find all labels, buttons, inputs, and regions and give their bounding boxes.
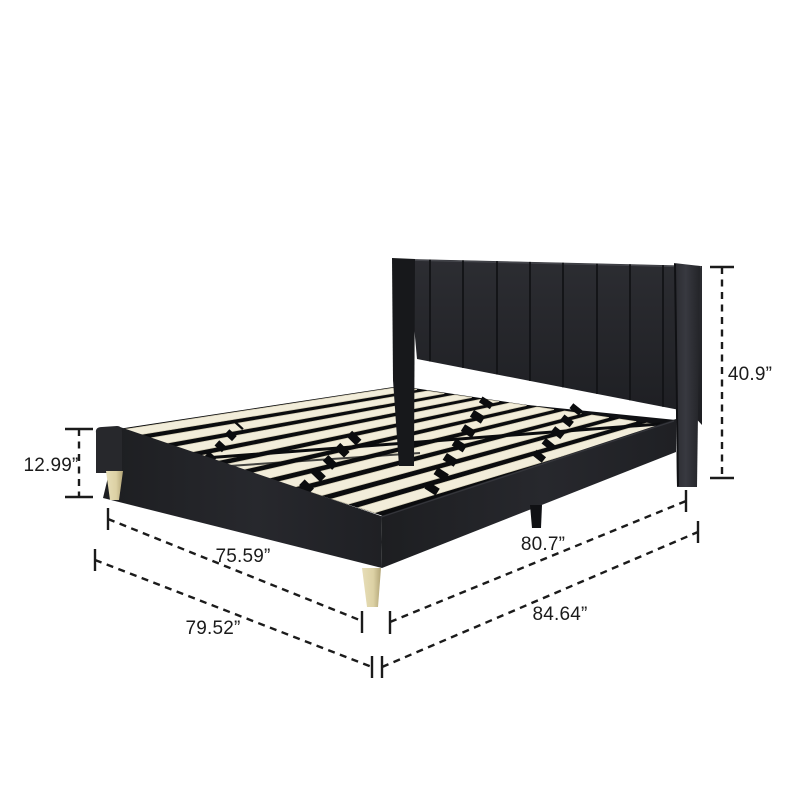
front-corner-leg <box>362 568 381 607</box>
center-support-leg <box>530 505 542 528</box>
dim-label-overall-length: 84.64” <box>532 604 587 626</box>
dim-line-overall-width <box>95 549 372 678</box>
dim-label-headboard-height: 40.9” <box>728 364 772 386</box>
bed-illustration <box>0 0 800 800</box>
dim-label-frame-width: 75.59” <box>215 546 270 568</box>
foot-corner-post <box>96 426 122 473</box>
bed-frame <box>96 258 702 607</box>
dim-label-overall-width: 79.52” <box>185 618 240 640</box>
dim-label-side-rail-height: 12.99” <box>23 455 78 477</box>
dim-label-frame-length: 80.7” <box>521 534 565 556</box>
bed-dimension-diagram: 12.99” 40.9” 75.59” 79.52” 80.7” 84.64” <box>0 0 800 800</box>
